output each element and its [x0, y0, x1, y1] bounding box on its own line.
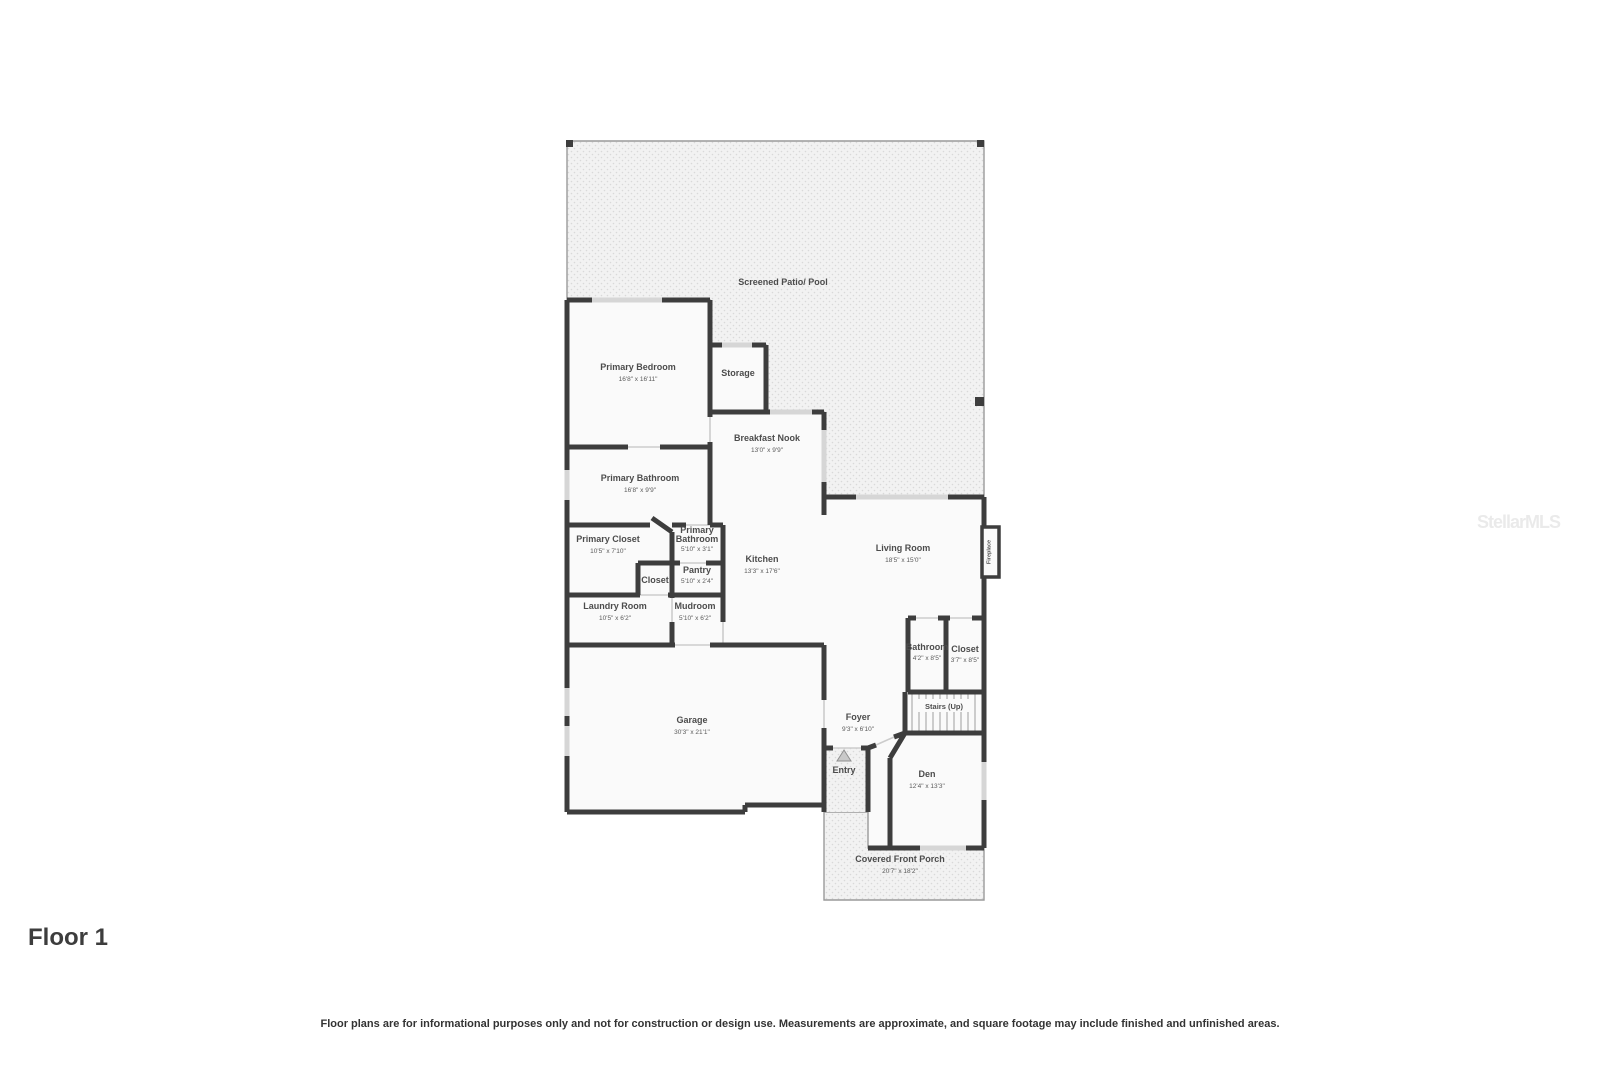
floorplan-page: Fireplace Stairs (Up) Screened Patio/ Po…: [0, 0, 1600, 1066]
dims-primary-bathroom: 16'8" x 9'9": [624, 487, 657, 494]
label-closet: Closet: [641, 575, 669, 585]
floor-title: Floor 1: [28, 924, 108, 952]
dims-primary-bedroom: 16'8" x 16'11": [619, 376, 658, 383]
label-primary-closet: Primary Closet: [576, 534, 640, 544]
label-primary-bedroom: Primary Bedroom: [600, 362, 676, 372]
label-living-room: Living Room: [876, 543, 931, 553]
dims-bathroom: 4'2" x 8'5": [913, 655, 942, 662]
label-primary-bathroom-2-line2: Bathroom: [676, 534, 719, 544]
label-screened-patio: Screened Patio/ Pool: [738, 277, 828, 287]
dims-primary-closet: 10'5" x 7'10": [590, 548, 626, 555]
fireplace: Fireplace: [982, 527, 999, 577]
label-mudroom: Mudroom: [675, 601, 716, 611]
stellar-mls-watermark: StellarMLS: [1477, 512, 1560, 533]
patio-corner-post: [977, 140, 984, 147]
dims-garage: 30'3" x 21'1": [674, 729, 710, 736]
dims-breakfast-nook: 13'0" x 9'9": [751, 447, 784, 454]
label-storage: Storage: [721, 368, 755, 378]
dims-laundry-room: 10'5" x 6'2": [599, 615, 632, 622]
dims-closet-2: 3'7" x 8'5": [951, 657, 980, 664]
label-closet-2: Closet: [951, 644, 979, 654]
dims-kitchen: 13'3" x 17'6": [744, 568, 780, 575]
label-primary-bathroom: Primary Bathroom: [601, 473, 680, 483]
dims-pantry: 5'10" x 2'4": [681, 578, 714, 585]
patio-corner-post: [566, 140, 573, 147]
fireplace-label: Fireplace: [987, 540, 993, 564]
label-den: Den: [918, 769, 935, 779]
stairs-label: Stairs (Up): [925, 702, 963, 711]
label-entry: Entry: [832, 765, 855, 775]
label-pantry: Pantry: [683, 565, 711, 575]
dims-covered-front-porch: 20'7" x 18'2": [882, 868, 918, 875]
dims-primary-bathroom-2: 5'10" x 3'1": [681, 546, 714, 553]
label-kitchen: Kitchen: [745, 554, 778, 564]
disclaimer-text: Floor plans are for informational purpos…: [0, 1018, 1600, 1030]
dims-living-room: 18'5" x 15'0": [885, 557, 921, 564]
dims-foyer: 9'3" x 6'10": [842, 726, 875, 733]
dims-den: 12'4" x 13'3": [909, 783, 945, 790]
stairs-area: Stairs (Up): [914, 699, 974, 712]
label-breakfast-nook: Breakfast Nook: [734, 433, 801, 443]
patio-wall-post: [975, 397, 984, 406]
label-garage: Garage: [676, 715, 707, 725]
label-covered-front-porch: Covered Front Porch: [855, 854, 945, 864]
dims-mudroom: 5'10" x 6'2": [679, 615, 712, 622]
label-laundry-room: Laundry Room: [583, 601, 647, 611]
label-foyer: Foyer: [846, 712, 871, 722]
floorplan-svg: Fireplace Stairs (Up) Screened Patio/ Po…: [0, 0, 1600, 1066]
label-bathroom: Bathroom: [906, 642, 949, 652]
